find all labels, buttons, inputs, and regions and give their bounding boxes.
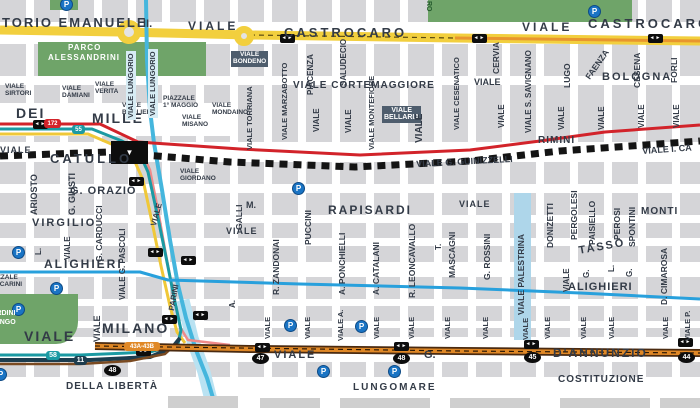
street-label: VIALE: [415, 114, 426, 143]
street-label: LUGO: [563, 63, 572, 88]
street-label: VIALE VERITA: [95, 82, 118, 96]
route-number-badge: 11: [74, 356, 87, 365]
street-label: VIALE: [662, 317, 670, 339]
street-label: VIALE: [274, 350, 316, 362]
street-label: COSTITUZIONE: [558, 375, 644, 386]
bus-line-badge: 45: [524, 352, 541, 363]
bus-line-badge: 48: [393, 353, 410, 364]
street-label: VIALE GIORDANO: [180, 169, 216, 183]
street-label: ALESSANDRINI: [48, 54, 120, 62]
street-label: L.: [35, 248, 43, 255]
street-label: VIALE: [563, 268, 571, 292]
street-label: G. ROSSINI: [483, 234, 492, 280]
street-label: LONGO: [0, 319, 16, 326]
bus-stop-icon: ◄►: [472, 34, 487, 43]
street-label: PERGOLESI: [570, 190, 579, 240]
street-label: DEI: [16, 106, 45, 121]
beach-block: [560, 398, 650, 408]
street-label: VIRGILIO: [32, 218, 96, 230]
street-label: VIALE DAMIANI: [62, 86, 90, 100]
street-label: VIALE: [313, 108, 321, 132]
parking-icon: P: [12, 246, 25, 259]
street-label: VIALE: [522, 21, 572, 34]
street-label: R. LEONCAVALLO: [408, 224, 417, 298]
bus-stop-icon: ◄►: [255, 343, 270, 352]
street-label: D'ANNUNZIO: [553, 347, 648, 360]
street-label: ALIGHIERI: [568, 282, 633, 294]
beach-block: [260, 398, 320, 408]
beach-block: [660, 398, 700, 408]
street-label: RO: [425, 1, 432, 12]
street-label: G. ORAZIO: [70, 186, 136, 198]
street-label: VIALE MISANO: [182, 115, 208, 129]
street-label: VIALE: [673, 104, 681, 128]
street-label: VIALE S.: [525, 100, 533, 133]
route-number-badge: 58: [46, 351, 60, 360]
street-label: PIACENZA: [307, 54, 315, 95]
route-number-badge: 43A-43B: [124, 342, 160, 351]
street-label: SPONTINI: [628, 207, 637, 247]
parking-icon: P: [355, 320, 368, 333]
street-label: VIALE: [444, 317, 452, 339]
street-label: MONTI: [641, 207, 678, 218]
street-label: DONIZETTI: [546, 203, 555, 248]
street-label: CASTROCARO: [588, 17, 700, 31]
street-label: VIALE TORRIANA: [246, 86, 254, 150]
street-label: VIALE G. PASCOLI: [119, 229, 127, 300]
street-label: VIALE: [0, 146, 32, 155]
street-label: VIALE: [608, 317, 616, 339]
street-label: RIMINI: [538, 136, 575, 147]
street-label: II.: [143, 19, 152, 31]
street-label: VIALE CESENATICO: [453, 57, 461, 130]
bus-stop-icon: ◄►: [394, 342, 409, 351]
street-label: SALUDECIO: [340, 39, 348, 86]
street-label: VIALE: [638, 104, 646, 128]
street-label: A. CATALANI: [372, 242, 381, 295]
street-label: VIALE: [64, 236, 72, 260]
street-label: CATULLO: [50, 152, 132, 166]
street-label: VIALE: [345, 109, 353, 133]
beach-block: [340, 398, 430, 408]
parking-icon: P: [284, 319, 297, 332]
street-label: VIALE SIRTORI: [5, 84, 31, 98]
street-label: CESENA: [633, 53, 642, 88]
street-label: ARIOSTO: [30, 174, 39, 215]
street-label: VIALE: [459, 200, 491, 209]
street-label: G.: [626, 269, 634, 277]
street-label: TORIO EMANUELE: [2, 16, 148, 30]
beach-block: [450, 398, 530, 408]
parking-icon: P: [292, 182, 305, 195]
street-label: FORLI: [670, 58, 679, 84]
street-label: VIALE BONDENO: [231, 51, 268, 67]
bus-line-badge: 47: [252, 353, 269, 364]
street-label: GIARDINI: [0, 310, 16, 317]
street-label: VIALE: [474, 78, 501, 87]
street-label: MILANO: [102, 321, 169, 336]
street-label: VIALE: [264, 317, 272, 339]
street-label: VIALE MARZABOTTO: [281, 63, 289, 140]
street-label: VIALE: [188, 20, 238, 33]
street-label: A.: [229, 300, 237, 308]
street-label: L.: [608, 265, 616, 272]
street-label: VIALE LUNGORIO: [148, 49, 158, 118]
street-label: VIALE: [498, 104, 506, 128]
street-label: VIALE: [522, 318, 530, 340]
street-label: CASTROCARO: [284, 26, 407, 40]
street-label: R. ZANDONAI: [272, 239, 281, 295]
street-label: VIALE MONDAINO: [212, 103, 248, 117]
street-label: GALLI: [235, 205, 244, 231]
street-label: VIALE MONTEFIORE: [368, 76, 376, 150]
street-label: VIALE P.: [684, 311, 692, 341]
street-label: G. CARDUCCI: [95, 205, 104, 262]
street-label: MASCAGNI: [448, 232, 457, 278]
bus-line-badge: 44: [678, 352, 695, 363]
parking-icon: P: [388, 365, 401, 378]
route-number-badge: 55: [72, 125, 85, 134]
street-label: VIALE: [598, 106, 606, 130]
street-label: ALIGHIERI: [44, 258, 123, 271]
street-label: G.: [424, 350, 436, 362]
street-label: VIALE: [482, 317, 490, 339]
bus-stop-icon: ◄►: [648, 34, 663, 43]
street-label: G. GIUSTI: [68, 173, 77, 215]
parking-icon: P: [50, 282, 63, 295]
street-label: VIALE: [304, 317, 312, 339]
street-label: PIAZZALE CECCARINI: [0, 275, 22, 289]
street-label: VIALE A.: [337, 310, 345, 341]
street-label: A. PONCHIELLI: [338, 233, 347, 295]
bus-stop-icon: ◄►: [524, 340, 539, 349]
street-label: DELLA LIBERTÀ: [66, 382, 158, 393]
street-label: PUCCINI: [304, 210, 313, 245]
street-label: VIALE: [373, 317, 381, 339]
street-label: VIALE: [408, 317, 416, 339]
street-label: VIALE: [558, 106, 566, 130]
bus-stop-icon: ◄►: [148, 248, 163, 257]
street-label: SAVIGNANO: [525, 50, 533, 98]
street-label: PEROSI: [613, 208, 622, 240]
street-label: VIALE: [580, 317, 588, 339]
beach-block: [168, 396, 238, 408]
bus-line-badge: 48: [104, 365, 121, 376]
street-label: PARCO: [68, 44, 101, 52]
street-label: M.: [246, 201, 256, 210]
city-transit-map[interactable]: ▼◄►◄►◄►◄►◄►◄►◄►◄►◄►◄►◄►◄►◄►◄►17255581143…: [0, 0, 700, 408]
parking-icon: P: [317, 365, 330, 378]
street-label: VIALE: [544, 317, 552, 339]
bus-stop-icon: ◄►: [193, 311, 208, 320]
bus-stop-icon: ◄►: [181, 256, 196, 265]
street-label: VIALE: [24, 329, 75, 344]
street-label: VIALE LUNGORIO: [126, 51, 136, 120]
street-label: VIALE PALESTRINA: [517, 234, 526, 315]
street-label: RAPISARDI: [328, 204, 412, 217]
street-label: VIALE: [93, 315, 102, 342]
street-label: PIAZZALE 1° MAGGIO: [163, 96, 198, 110]
street-label: D. CIMAROSA: [660, 248, 669, 305]
street-label: T.: [435, 244, 443, 250]
street-label: CERVIA: [492, 42, 501, 74]
route-number-badge: 172: [44, 119, 61, 128]
street-label: LUNGOMARE: [353, 383, 437, 394]
street-label: PAISIELLO: [588, 201, 597, 245]
street-label: G.: [583, 270, 591, 278]
